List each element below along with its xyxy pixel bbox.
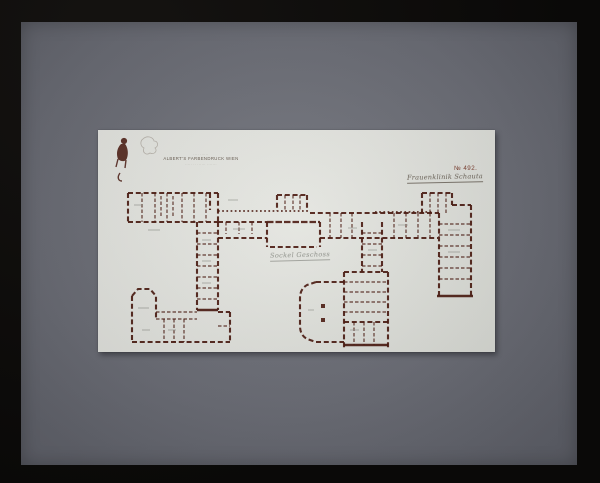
mat-board: ···· ······ ALBERT'S FARBENDRUCK WIEN ··… bbox=[21, 22, 577, 465]
drawing-sheet: ···· ······ ALBERT'S FARBENDRUCK WIEN ··… bbox=[98, 130, 495, 352]
sheet-title-handwritten: Frauenklinik Schauta bbox=[407, 172, 483, 183]
wing-top-left bbox=[128, 193, 218, 222]
floor-level-label: Sockel Geschoss bbox=[270, 250, 330, 261]
wing-left-vertical bbox=[197, 222, 218, 310]
printer-stamp: ···· ······ ALBERT'S FARBENDRUCK WIEN ··… bbox=[113, 135, 263, 193]
pencil-room-annotations bbox=[134, 200, 460, 330]
wing-mid-right bbox=[362, 222, 382, 272]
wing-far-right bbox=[422, 193, 473, 296]
stamp-text-block: ···· ······ ALBERT'S FARBENDRUCK WIEN ··… bbox=[142, 152, 260, 166]
central-corridor-and-hall bbox=[218, 195, 439, 247]
plate-number: № 492. bbox=[454, 165, 477, 172]
stamp-subline-bottom: ····· ·· ······ ······· bbox=[142, 162, 260, 166]
wing-bottom-left bbox=[132, 289, 230, 342]
